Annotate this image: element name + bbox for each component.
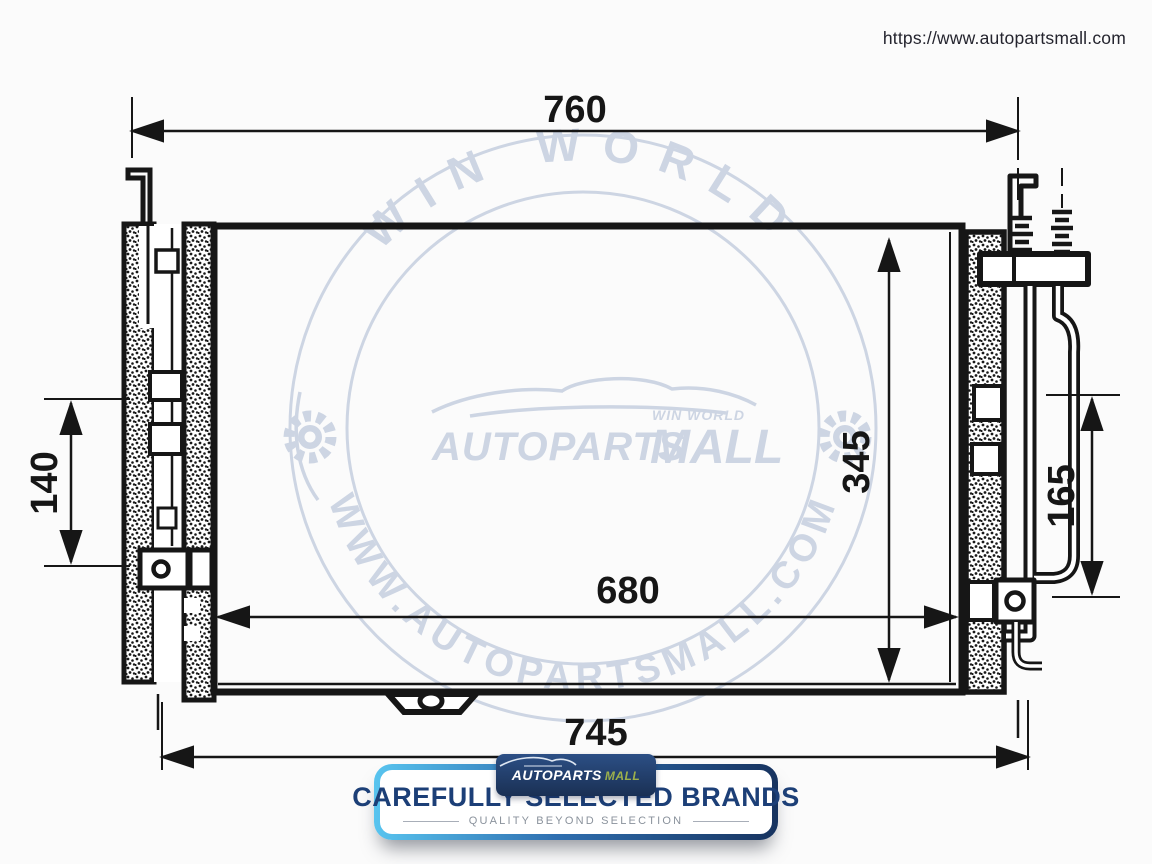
bottom-mounting-tab [388, 693, 476, 712]
threaded-fitting-right [1051, 212, 1073, 252]
left-bracket-bolt-hole [140, 550, 212, 588]
dim-label-345: 345 [836, 430, 878, 493]
condenser-drawing: 760 140 345 165 680 745 [0, 0, 1152, 864]
dim-label-680: 680 [596, 570, 659, 612]
subtitle-divider-right [693, 821, 749, 822]
threaded-fitting-left [1011, 218, 1033, 250]
dim-label-140: 140 [24, 451, 66, 514]
dimension-left-bracket-height: 140 [24, 399, 130, 566]
brand-banner: AUTOPARTSMALL CAREFULLY SELECTED BRANDS … [374, 764, 778, 840]
subtitle-divider-left [403, 821, 459, 822]
dimension-top-width: 760 [132, 89, 1018, 200]
website-url: https://www.autopartsmall.com [883, 28, 1126, 49]
right-header-column [966, 232, 1018, 738]
dimension-right-span: 165 [1041, 395, 1120, 597]
product-image: WIN WORLD WWW.AUTOPARTSMALL.COM AUTOPART… [0, 0, 1152, 864]
badge-brand-main: AUTOPARTS [512, 767, 602, 783]
dimension-core-height: 345 [836, 240, 889, 680]
mounting-bracket-top-left [128, 170, 150, 226]
pipe-manifold [980, 254, 1088, 284]
receiver-drier-column [124, 224, 214, 730]
badge-brand-suffix: MALL [605, 769, 640, 783]
dim-label-745: 745 [564, 712, 627, 754]
banner-subtitle: QUALITY BEYOND SELECTION [469, 816, 684, 827]
brand-badge: AUTOPARTSMALL [496, 754, 656, 796]
badge-brand-text: AUTOPARTSMALL [512, 768, 640, 782]
dimension-core-width: 680 [218, 570, 956, 617]
car-logo-icon [496, 754, 580, 768]
banner-subtitle-row: QUALITY BEYOND SELECTION [403, 816, 750, 827]
dim-label-165: 165 [1041, 464, 1083, 527]
dim-label-760: 760 [543, 89, 606, 131]
